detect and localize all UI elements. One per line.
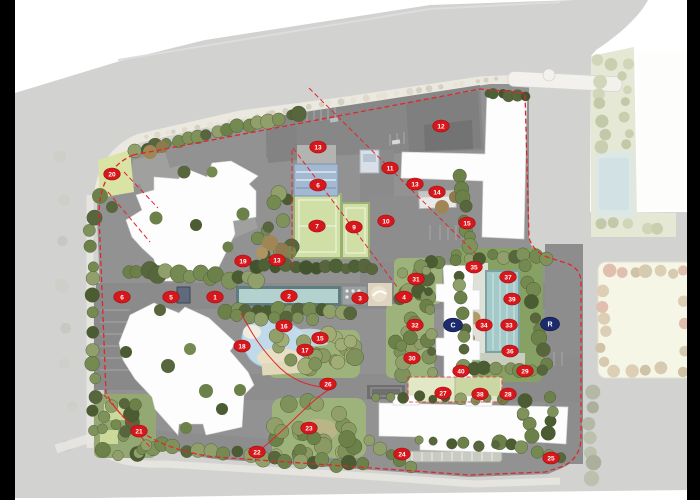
svg-text:14: 14 [433,189,441,196]
svg-text:28: 28 [504,391,512,398]
svg-text:19: 19 [239,258,247,265]
svg-text:12: 12 [437,123,445,130]
svg-text:27: 27 [439,390,447,397]
svg-text:25: 25 [547,455,555,462]
svg-text:40: 40 [457,368,465,375]
svg-text:21: 21 [135,428,143,435]
svg-text:24: 24 [398,451,406,458]
svg-text:11: 11 [387,165,394,172]
svg-text:20: 20 [108,171,116,178]
svg-text:9: 9 [352,224,356,231]
svg-text:13: 13 [314,144,322,151]
svg-text:1: 1 [213,294,217,301]
svg-text:6: 6 [316,182,320,189]
svg-text:36: 36 [506,348,514,355]
svg-text:5: 5 [169,294,173,301]
svg-text:37: 37 [504,274,512,281]
svg-text:31: 31 [412,276,420,283]
svg-text:13: 13 [411,181,419,188]
svg-text:6: 6 [120,294,124,301]
svg-text:18: 18 [238,343,246,350]
svg-text:16: 16 [280,323,288,330]
svg-text:26: 26 [324,381,332,388]
svg-text:15: 15 [316,335,324,342]
svg-text:3: 3 [358,295,362,302]
svg-text:7: 7 [315,223,319,230]
svg-text:33: 33 [505,322,513,329]
svg-text:35: 35 [470,264,478,271]
svg-text:30: 30 [408,355,416,362]
svg-text:10: 10 [382,218,390,225]
svg-text:4: 4 [402,294,406,301]
svg-text:38: 38 [476,391,484,398]
svg-text:39: 39 [508,296,516,303]
svg-text:22: 22 [253,449,261,456]
svg-text:32: 32 [411,322,419,329]
svg-text:C: C [450,323,455,330]
svg-text:34: 34 [480,322,488,329]
svg-text:15: 15 [463,220,471,227]
svg-text:23: 23 [305,425,313,432]
svg-text:R: R [547,322,552,329]
svg-text:2: 2 [287,293,291,300]
svg-text:17: 17 [301,347,309,354]
svg-text:13: 13 [273,257,281,264]
svg-text:29: 29 [521,368,529,375]
